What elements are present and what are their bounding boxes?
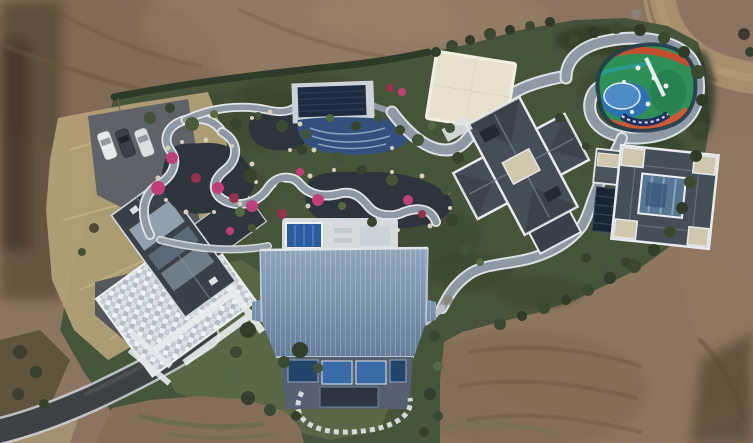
aerial-photo [0,0,753,443]
barn-lower-deck [320,387,378,407]
aerial-photo-canvas [0,0,753,443]
pool-cover [298,85,367,117]
barn-window-band [288,360,318,382]
playground [596,44,695,130]
